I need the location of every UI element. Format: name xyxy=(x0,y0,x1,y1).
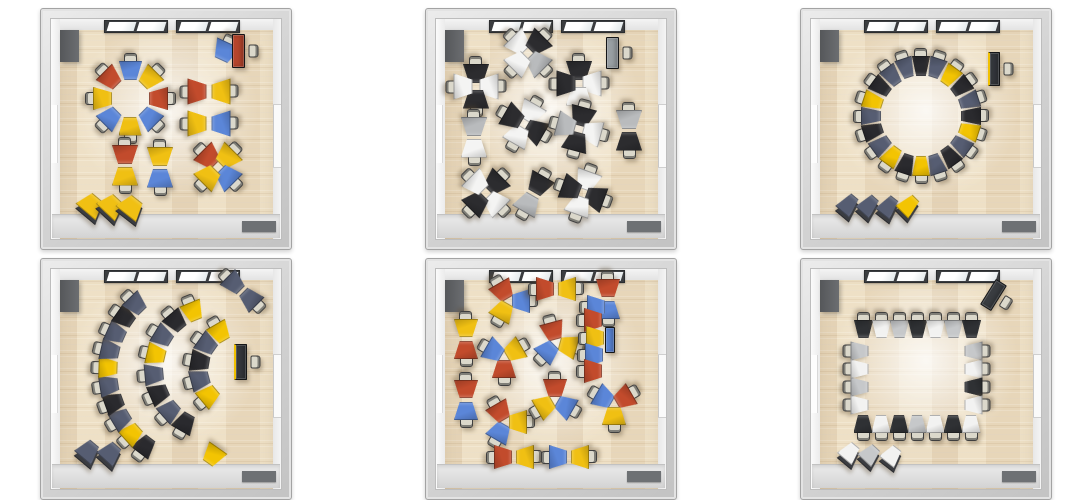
student-table xyxy=(112,145,138,164)
student-table xyxy=(188,110,207,136)
student-table-group xyxy=(616,110,642,129)
furniture-layer xyxy=(41,259,291,499)
student-table-group xyxy=(964,396,982,415)
room-1-ring-and-groups-color xyxy=(40,8,292,250)
student-table-group xyxy=(944,415,963,433)
student-table-group xyxy=(454,73,473,99)
student-table-group xyxy=(962,320,981,338)
student-table-group xyxy=(850,378,868,397)
student-table xyxy=(147,147,173,166)
student-table-group xyxy=(908,415,927,433)
teacher-chair xyxy=(622,47,632,60)
student-table-group xyxy=(850,360,868,379)
student-table-group xyxy=(854,415,873,433)
student-table xyxy=(212,110,231,136)
student-table xyxy=(112,167,138,186)
student-table xyxy=(494,445,512,469)
student-table xyxy=(509,410,527,434)
stack-top-table xyxy=(115,191,147,222)
student-table xyxy=(962,320,981,338)
student-table xyxy=(850,342,868,361)
student-table-group xyxy=(850,396,868,415)
student-table-group xyxy=(516,445,534,469)
stack-top-table xyxy=(878,442,904,468)
student-table-group xyxy=(509,410,527,434)
stacked-tables xyxy=(891,192,926,227)
classroom-layouts-grid xyxy=(0,0,1080,500)
student-table-group xyxy=(602,407,626,425)
student-table-group xyxy=(199,441,228,469)
student-table xyxy=(454,380,478,398)
student-table xyxy=(850,378,868,397)
student-table xyxy=(454,341,478,359)
student-table-group xyxy=(461,139,487,158)
student-table xyxy=(461,117,487,136)
student-table-group xyxy=(454,319,478,337)
student-table-group xyxy=(962,415,981,433)
student-table xyxy=(944,415,963,433)
student-table-group xyxy=(454,380,478,398)
teacher-desk-group xyxy=(988,52,1000,86)
student-table-group xyxy=(494,445,512,469)
teacher-desk-group xyxy=(606,37,619,69)
student-table-group xyxy=(926,320,945,338)
student-table xyxy=(558,277,576,301)
student-table xyxy=(557,70,576,96)
student-table xyxy=(926,320,945,338)
student-table xyxy=(516,445,534,469)
student-table-group xyxy=(533,337,563,367)
teacher-chair xyxy=(250,356,260,369)
student-table xyxy=(890,415,909,433)
student-table xyxy=(944,320,963,338)
teacher-desk-group xyxy=(980,279,1007,311)
student-table-group xyxy=(558,277,576,301)
student-table-group xyxy=(926,415,945,433)
student-table-group xyxy=(850,342,868,361)
student-table xyxy=(616,110,642,129)
student-table-group xyxy=(549,445,567,469)
student-table-group xyxy=(147,147,173,166)
teacher-chair xyxy=(248,45,258,58)
teacher-desk xyxy=(606,37,619,69)
furniture-layer xyxy=(41,9,291,249)
student-table xyxy=(850,360,868,379)
student-table xyxy=(964,378,982,397)
student-table-group xyxy=(944,320,963,338)
student-table xyxy=(872,415,891,433)
student-table xyxy=(212,78,231,104)
student-table-group xyxy=(571,445,589,469)
student-table xyxy=(854,320,873,338)
student-table-group xyxy=(964,342,982,361)
room-4-amphitheater-arcs xyxy=(40,258,292,500)
student-table xyxy=(616,132,642,151)
teacher-desk xyxy=(988,52,1000,86)
student-table xyxy=(454,402,478,420)
student-table-group xyxy=(872,320,891,338)
student-table-group xyxy=(188,110,207,136)
student-table-group xyxy=(454,341,478,359)
student-table xyxy=(188,78,207,104)
student-table xyxy=(584,359,602,383)
student-table-group xyxy=(584,359,602,383)
student-table xyxy=(926,415,945,433)
student-table xyxy=(602,407,626,425)
furniture-layer xyxy=(801,9,1051,249)
student-table xyxy=(147,169,173,188)
student-table-group xyxy=(212,78,231,104)
teacher-desk-group xyxy=(232,34,245,68)
teacher-chair xyxy=(998,295,1013,311)
student-table xyxy=(962,415,981,433)
room-6-hollow-square-monochrome xyxy=(800,258,1052,500)
room-3-circle-monochrome-yellow xyxy=(800,8,1052,250)
student-table-group xyxy=(536,277,554,301)
teacher-chair xyxy=(1004,63,1014,76)
student-table xyxy=(964,342,982,361)
teacher-desk-group xyxy=(605,327,615,353)
student-table xyxy=(454,73,473,99)
student-table-group xyxy=(112,167,138,186)
student-table-group xyxy=(454,402,478,420)
student-table-group xyxy=(188,78,207,104)
student-table xyxy=(908,320,927,338)
student-table xyxy=(536,277,554,301)
student-table-group xyxy=(212,110,231,136)
student-table xyxy=(461,139,487,158)
student-table-group xyxy=(616,132,642,151)
teacher-desk-group xyxy=(234,344,247,380)
furniture-layer xyxy=(426,259,676,499)
furniture-layer xyxy=(426,9,676,249)
student-table-group xyxy=(112,145,138,164)
teacher-desk xyxy=(232,34,245,68)
room-5-scattered-pods-color xyxy=(425,258,677,500)
student-table xyxy=(854,415,873,433)
student-table-group xyxy=(890,320,909,338)
room-2-scattered-pods-monochrome xyxy=(425,8,677,250)
student-table-group xyxy=(557,70,576,96)
student-table xyxy=(872,320,891,338)
student-table xyxy=(964,396,982,415)
student-table-group xyxy=(147,169,173,188)
student-table xyxy=(850,396,868,415)
teacher-desk xyxy=(605,327,615,353)
student-table xyxy=(571,445,589,469)
stacked-tables xyxy=(875,442,909,476)
student-table xyxy=(549,445,567,469)
student-table-group xyxy=(964,360,982,379)
student-table-group xyxy=(890,415,909,433)
student-table xyxy=(964,360,982,379)
student-table xyxy=(908,415,927,433)
student-table-group xyxy=(461,117,487,136)
furniture-layer xyxy=(801,259,1051,499)
student-table xyxy=(890,320,909,338)
student-table-group xyxy=(872,415,891,433)
student-table-group xyxy=(908,320,927,338)
student-table xyxy=(199,441,228,469)
student-table-group xyxy=(854,320,873,338)
student-table xyxy=(454,319,478,337)
teacher-desk xyxy=(234,344,247,380)
student-table-group xyxy=(964,378,982,397)
